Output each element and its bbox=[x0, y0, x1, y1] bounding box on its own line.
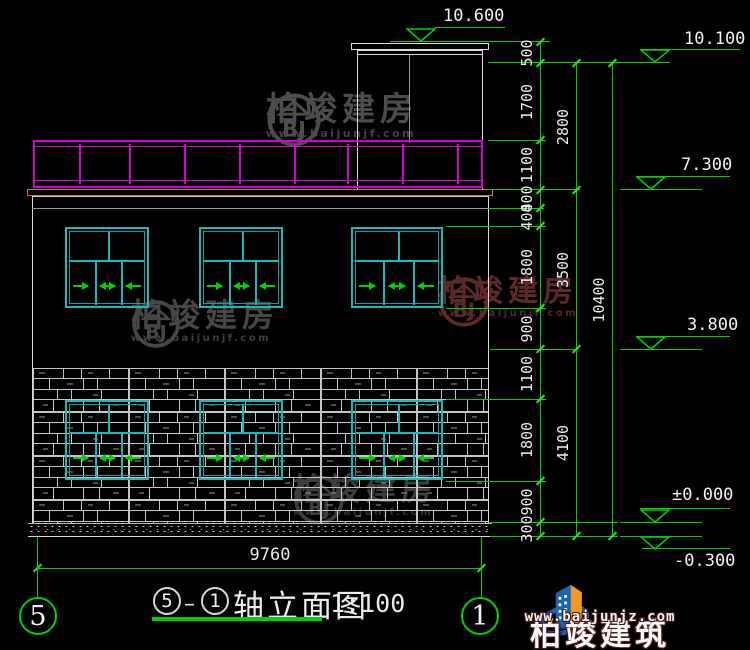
title-underline bbox=[152, 617, 322, 621]
elevation-value: 7.300 bbox=[681, 155, 732, 175]
elevation-triangle-icon bbox=[636, 176, 666, 191]
title-dash: – bbox=[184, 592, 195, 617]
elevation-triangle-icon bbox=[636, 336, 666, 351]
elevation-leader-line bbox=[435, 27, 505, 28]
axis-bubble-right: 1 bbox=[461, 597, 499, 635]
elevation-marker-layer: 10.60010.1007.3003.800±0.000-0.300 bbox=[0, 0, 750, 650]
elevation-value: 10.100 bbox=[684, 29, 745, 49]
title-circle-end: 1 bbox=[201, 587, 229, 615]
axis-bubble-left: 5 bbox=[19, 597, 57, 635]
bottom-dimension-value: 9760 bbox=[225, 545, 315, 565]
elevation-value: -0.300 bbox=[674, 551, 735, 571]
drawing-scale: 1:100 bbox=[330, 589, 405, 618]
title-circle-start: 5 bbox=[153, 587, 181, 615]
axis-bubble-left-number: 5 bbox=[29, 601, 46, 632]
title-circle-end-number: 1 bbox=[209, 590, 220, 612]
brand-url: www.baijunjz.com bbox=[525, 609, 676, 625]
elevation-triangle-icon bbox=[640, 536, 670, 551]
elevation-value: 3.800 bbox=[687, 315, 738, 335]
elevation-value: ±0.000 bbox=[672, 485, 733, 505]
elevation-drawing-canvas: BJ柏竣建房www.baijunjf.comBJ柏竣建房www.baijunjf… bbox=[0, 0, 750, 650]
elevation-triangle-icon bbox=[406, 28, 436, 43]
elevation-triangle-icon bbox=[640, 509, 670, 524]
title-circle-start-number: 5 bbox=[161, 590, 172, 612]
axis-bubble-right-number: 1 bbox=[471, 601, 488, 632]
elevation-triangle-icon bbox=[640, 49, 670, 64]
brand-logo: 柏竣建筑 www.baijunjz.com bbox=[538, 576, 748, 642]
elevation-value: 10.600 bbox=[443, 6, 504, 26]
